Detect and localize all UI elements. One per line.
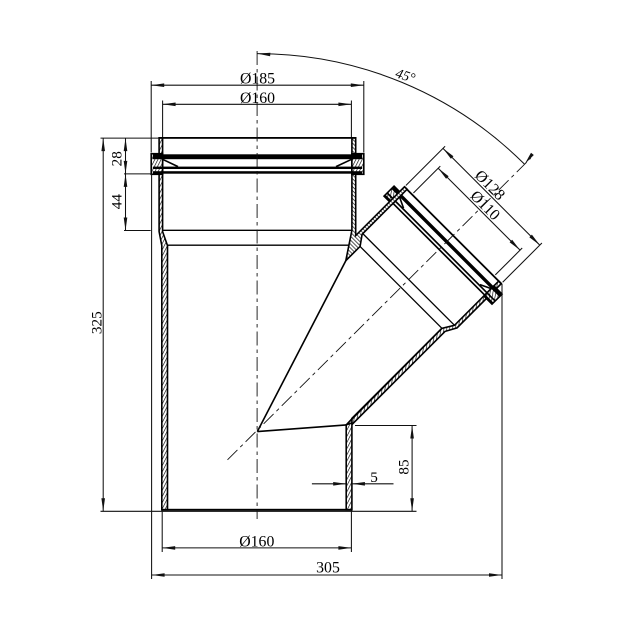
svg-text:85: 85 (395, 459, 412, 474)
svg-text:Ø185: Ø185 (240, 71, 275, 88)
svg-text:325: 325 (89, 311, 106, 334)
svg-text:44: 44 (109, 194, 126, 210)
svg-text:5: 5 (370, 469, 378, 486)
svg-text:28: 28 (109, 151, 126, 167)
svg-text:305: 305 (316, 559, 340, 576)
svg-text:Ø160: Ø160 (239, 533, 274, 550)
svg-text:Ø160: Ø160 (240, 90, 275, 107)
